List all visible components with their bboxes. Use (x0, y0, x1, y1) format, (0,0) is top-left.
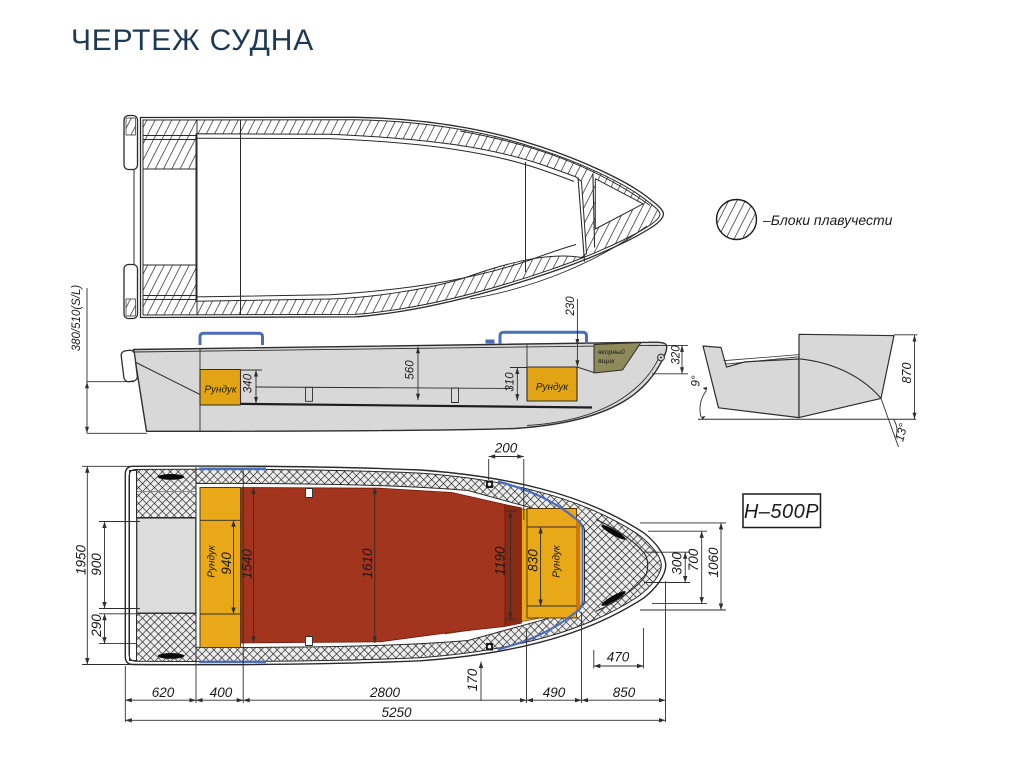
svg-text:830: 830 (526, 549, 541, 572)
svg-text:ящик: ящик (597, 358, 615, 365)
svg-text:290: 290 (89, 614, 104, 638)
svg-text:850: 850 (613, 685, 636, 700)
svg-text:1060: 1060 (706, 547, 721, 578)
svg-text:Рундук: Рундук (204, 385, 238, 396)
svg-text:900: 900 (89, 553, 104, 576)
svg-text:ЧЕРТЕЖ СУДНА: ЧЕРТЕЖ СУДНА (71, 24, 314, 57)
svg-text:Рундук: Рундук (536, 382, 570, 393)
svg-text:230: 230 (565, 296, 577, 317)
svg-text:940: 940 (219, 552, 234, 575)
svg-text:470: 470 (607, 650, 630, 665)
svg-text:1610: 1610 (360, 548, 375, 579)
svg-text:–Блоки плавучести: –Блоки плавучести (762, 212, 893, 228)
svg-text:1190: 1190 (493, 546, 508, 576)
svg-text:400: 400 (210, 685, 233, 700)
svg-text:490: 490 (543, 685, 566, 700)
svg-text:340: 340 (243, 373, 255, 393)
svg-text:9°: 9° (689, 375, 703, 387)
svg-text:560: 560 (405, 360, 417, 380)
svg-text:620: 620 (152, 685, 175, 700)
svg-text:Н–500Р: Н–500Р (744, 501, 819, 523)
svg-text:310: 310 (505, 372, 517, 392)
svg-text:700: 700 (686, 548, 701, 571)
svg-text:1540: 1540 (240, 548, 255, 579)
svg-text:5250: 5250 (381, 705, 412, 720)
svg-text:380/510(S/L): 380/510(S/L) (71, 285, 83, 352)
svg-text:якорный: якорный (597, 348, 625, 356)
svg-text:1950: 1950 (74, 544, 89, 575)
svg-text:2800: 2800 (369, 685, 401, 700)
svg-text:Рундук: Рундук (207, 544, 218, 578)
svg-text:170: 170 (465, 668, 480, 691)
svg-text:300: 300 (670, 552, 685, 575)
svg-text:870: 870 (900, 363, 914, 384)
svg-text:200: 200 (494, 441, 518, 456)
svg-text:320: 320 (671, 345, 683, 365)
svg-text:Рундук: Рундук (552, 544, 563, 578)
